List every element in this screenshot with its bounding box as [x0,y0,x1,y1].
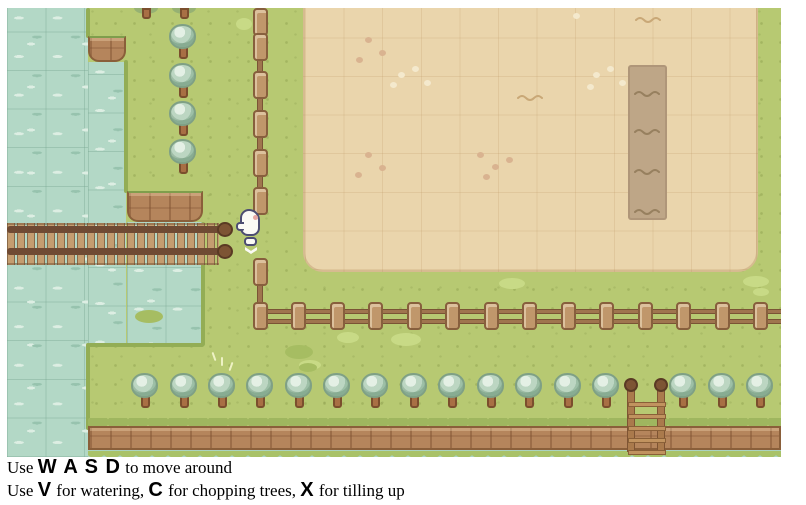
tree [169,24,198,62]
tree-canopy [361,373,388,398]
tree-canopy [515,373,542,398]
field-speckle [412,66,419,72]
instruction-text: to move around [121,458,232,477]
tree [400,373,429,411]
field-speckle [424,80,431,86]
grass-tufts-bottom [88,451,781,457]
field-speckle [398,72,405,78]
key-label: V [38,479,52,501]
tree-canopy [708,373,735,398]
fence-post [291,302,306,330]
tree-canopy [669,373,696,398]
tree [285,373,314,411]
soil-tilde [634,202,660,210]
field-speckle [483,174,490,180]
field-speckle [379,165,386,171]
fence-post [561,302,576,330]
instruction-text: Use [7,458,38,477]
field-speckle [619,80,626,86]
tree-canopy [554,373,581,398]
grass-fringe [86,343,90,430]
fence-post [715,302,730,330]
ladder-knob-left [624,378,638,392]
instruction-line-2: Use V for watering, C for chopping trees… [7,479,799,502]
grass-patch [135,310,163,323]
tree-stub-trunk [180,8,189,19]
tree-stub-trunk [142,8,151,19]
grass-fringe [124,60,128,193]
tree-canopy [285,373,312,398]
tree-canopy [477,373,504,398]
grass-patch [299,363,317,372]
field-speckle [379,50,386,56]
field-speckle [587,84,594,90]
bridge-rail-top [7,226,229,233]
tree [246,373,275,411]
water-area-upper [88,62,126,345]
player-nose [236,222,244,231]
grass-patch [743,276,769,287]
tree [208,373,237,411]
grass-patch [285,345,313,359]
key-label: C [148,479,163,501]
instructions-panel: Use W A S D to move around Use V for wat… [7,456,799,502]
fence-post [638,302,653,330]
player-character [238,207,264,255]
tree-canopy [170,373,197,398]
fence-post [753,302,768,330]
fence-post [253,8,268,36]
ladder-knob-right [654,378,668,392]
farm-field [303,8,758,272]
instruction-text: for watering, [52,481,148,500]
cliff-notch [127,191,203,222]
tree [169,101,198,139]
tree-canopy [169,24,196,49]
instruction-text: for tilling up [315,481,405,500]
ladder-rung [628,450,666,455]
fence-post [445,302,460,330]
soil-tilde [634,84,660,92]
tree [554,373,583,411]
cliff-bottom-band [88,426,781,450]
field-speckle [365,37,372,43]
tree-canopy [592,373,619,398]
field-tilde [517,88,543,96]
tree-canopy [746,373,773,398]
fence-post [253,71,268,99]
grass-patch [499,278,525,289]
fence-post [522,302,537,330]
cliff-peninsula [88,36,126,62]
grass-fringe [86,8,90,38]
bridge [7,222,233,266]
grass-patch [753,288,769,296]
tree-canopy [246,373,273,398]
tree-canopy [169,63,196,88]
tree [323,373,352,411]
game-viewport[interactable] [7,8,781,457]
field-speckle [593,72,600,78]
fence-post [330,302,345,330]
ladder-rung [628,438,666,443]
fence-post [253,33,268,61]
hay-stroke [229,362,234,371]
tree-canopy [208,373,235,398]
tree [438,373,467,411]
fence-post [599,302,614,330]
player-feet [245,247,257,254]
ladder-rung [628,414,666,419]
tree [669,373,698,411]
hay-stroke [221,357,223,366]
ladder-rung [628,402,666,407]
fence-post [253,110,268,138]
tree-canopy [131,373,158,398]
key-label: W A S D [38,456,121,478]
tree [477,373,506,411]
tree [361,373,390,411]
fence-post [253,149,268,177]
fence-post [368,302,383,330]
tree [131,373,160,411]
field-speckle [506,157,513,163]
player-blush [253,215,258,220]
instruction-text: Use [7,481,38,500]
tree [592,373,621,411]
instruction-text: for chopping trees, [164,481,300,500]
tree-canopy [323,373,350,398]
instruction-line-1: Use W A S D to move around [7,456,799,479]
field-speckle [477,152,484,158]
tree [169,63,198,101]
ladder-rung [628,426,666,431]
field-speckle [390,82,397,88]
tree [515,373,544,411]
tree-canopy [438,373,465,398]
tree [169,139,198,177]
fence-post [676,302,691,330]
fence-post [253,302,268,330]
tree-canopy [169,101,196,126]
key-label: X [300,479,314,501]
grass-patch [236,18,252,30]
hay-stroke [212,352,217,361]
bridge-post-knob [217,222,233,237]
grass-fringe [88,343,204,347]
field-speckle [356,57,363,63]
soil-tilde [634,162,660,170]
field-speckle [607,66,614,72]
bridge-rail-bottom [7,248,229,255]
field-speckle [492,164,499,170]
tree [746,373,775,411]
field-speckle [573,13,580,19]
tree-canopy [169,139,196,164]
tree-canopy [400,373,427,398]
tree [170,373,199,411]
grass-patch [391,333,421,346]
fence-post [484,302,499,330]
field-speckle [365,152,372,158]
player-body [244,237,257,246]
soil-tilde [634,122,660,130]
fence-post [407,302,422,330]
fence-post [253,258,268,286]
bridge-post-knob [217,244,233,259]
field-speckle [355,172,362,178]
field-tilde [635,10,661,18]
grass-patch [337,332,359,343]
tree [708,373,737,411]
